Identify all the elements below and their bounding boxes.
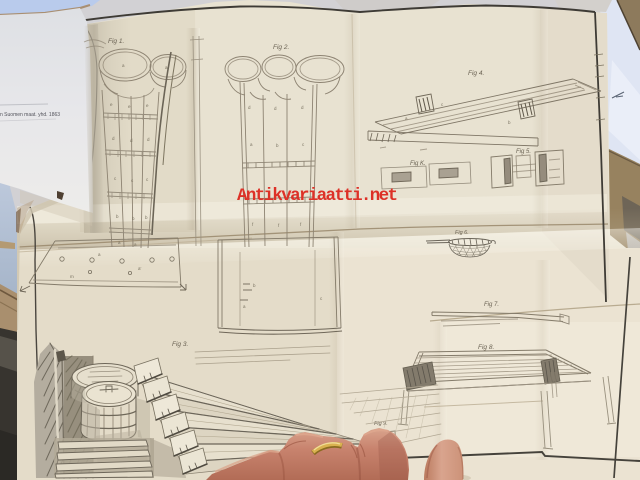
svg-text:Fig 1.: Fig 1. bbox=[108, 38, 124, 45]
svg-text:Fig 6.: Fig 6. bbox=[455, 230, 469, 236]
svg-text:Fig 8.: Fig 8. bbox=[478, 344, 494, 351]
svg-text:n Suomen maat. yhd. 1863: n Suomen maat. yhd. 1863 bbox=[0, 112, 60, 118]
svg-text:Fig 3.: Fig 3. bbox=[172, 341, 188, 348]
svg-text:Antikvariaatti.net: Antikvariaatti.net bbox=[237, 186, 398, 206]
svg-text:m: m bbox=[70, 274, 74, 279]
svg-text:Fig 5.: Fig 5. bbox=[516, 149, 531, 155]
svg-text:Fig 2.: Fig 2. bbox=[273, 44, 289, 51]
svg-text:Fig 7.: Fig 7. bbox=[484, 302, 499, 308]
svg-text:Fig 4.: Fig 4. bbox=[468, 70, 484, 77]
svg-text:a′: a′ bbox=[138, 266, 142, 271]
